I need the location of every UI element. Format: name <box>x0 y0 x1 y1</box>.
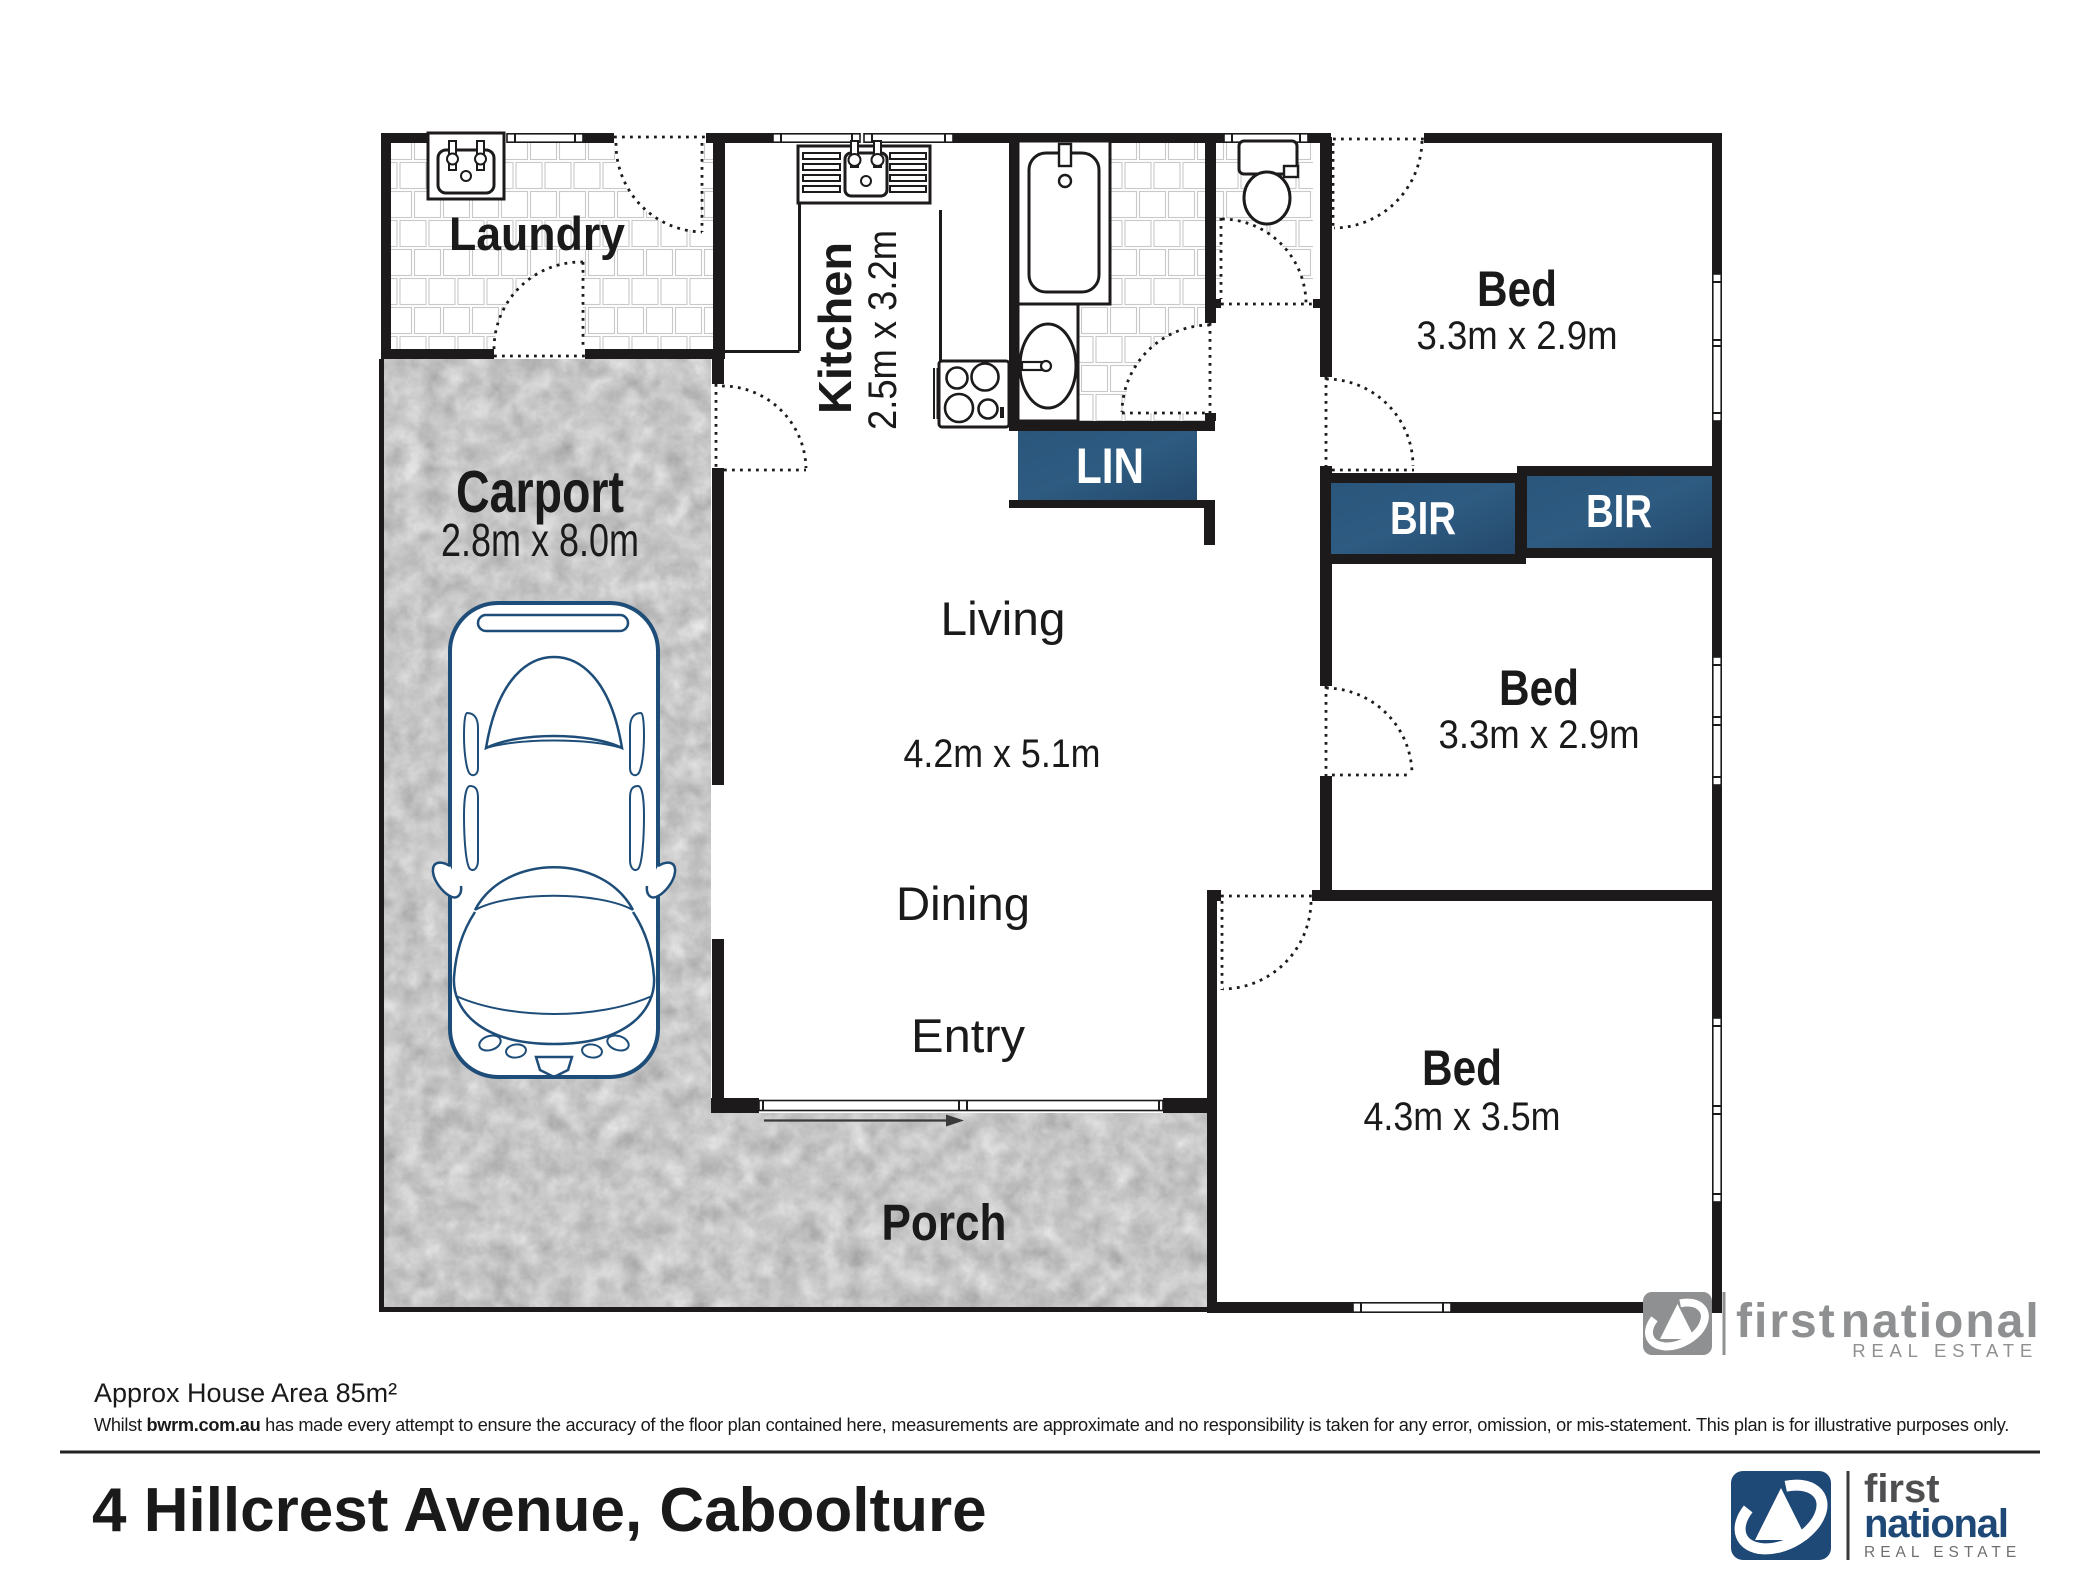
svg-text:3.3m x 2.9m: 3.3m x 2.9m <box>1439 713 1640 757</box>
svg-text:Bed: Bed <box>1422 1040 1502 1096</box>
svg-text:Laundry: Laundry <box>449 207 625 260</box>
svg-text:3.3m x 2.9m: 3.3m x 2.9m <box>1417 314 1618 358</box>
svg-text:Bed: Bed <box>1499 660 1579 716</box>
svg-text:Porch: Porch <box>882 1194 1007 1251</box>
svg-text:Kitchen: Kitchen <box>809 242 861 414</box>
svg-text:BIR: BIR <box>1390 492 1456 544</box>
svg-text:BIR: BIR <box>1586 485 1652 537</box>
svg-text:2.5m x 3.2m: 2.5m x 3.2m <box>861 230 905 430</box>
svg-text:Dining: Dining <box>896 877 1030 930</box>
svg-text:Living: Living <box>941 592 1066 645</box>
svg-text:Entry: Entry <box>911 1009 1026 1062</box>
svg-text:Approx House Area 85m²: Approx House Area 85m² <box>94 1378 397 1408</box>
svg-text:4 Hillcrest Avenue, Caboolture: 4 Hillcrest Avenue, Caboolture <box>92 1476 987 1545</box>
svg-text:national: national <box>1864 1502 2008 1546</box>
svg-text:REAL ESTATE: REAL ESTATE <box>1864 1544 2021 1561</box>
svg-text:4.2m x 5.1m: 4.2m x 5.1m <box>904 732 1101 776</box>
svg-text:Bed: Bed <box>1477 261 1557 317</box>
svg-text:Whilst bwrm.com.au has made ev: Whilst bwrm.com.au has made every attemp… <box>94 1415 2009 1435</box>
svg-text:LIN: LIN <box>1076 438 1144 494</box>
svg-text:4.3m x 3.5m: 4.3m x 3.5m <box>1364 1095 1561 1139</box>
svg-text:2.8m x 8.0m: 2.8m x 8.0m <box>441 514 639 566</box>
svg-text:REAL ESTATE: REAL ESTATE <box>1852 1340 2038 1361</box>
